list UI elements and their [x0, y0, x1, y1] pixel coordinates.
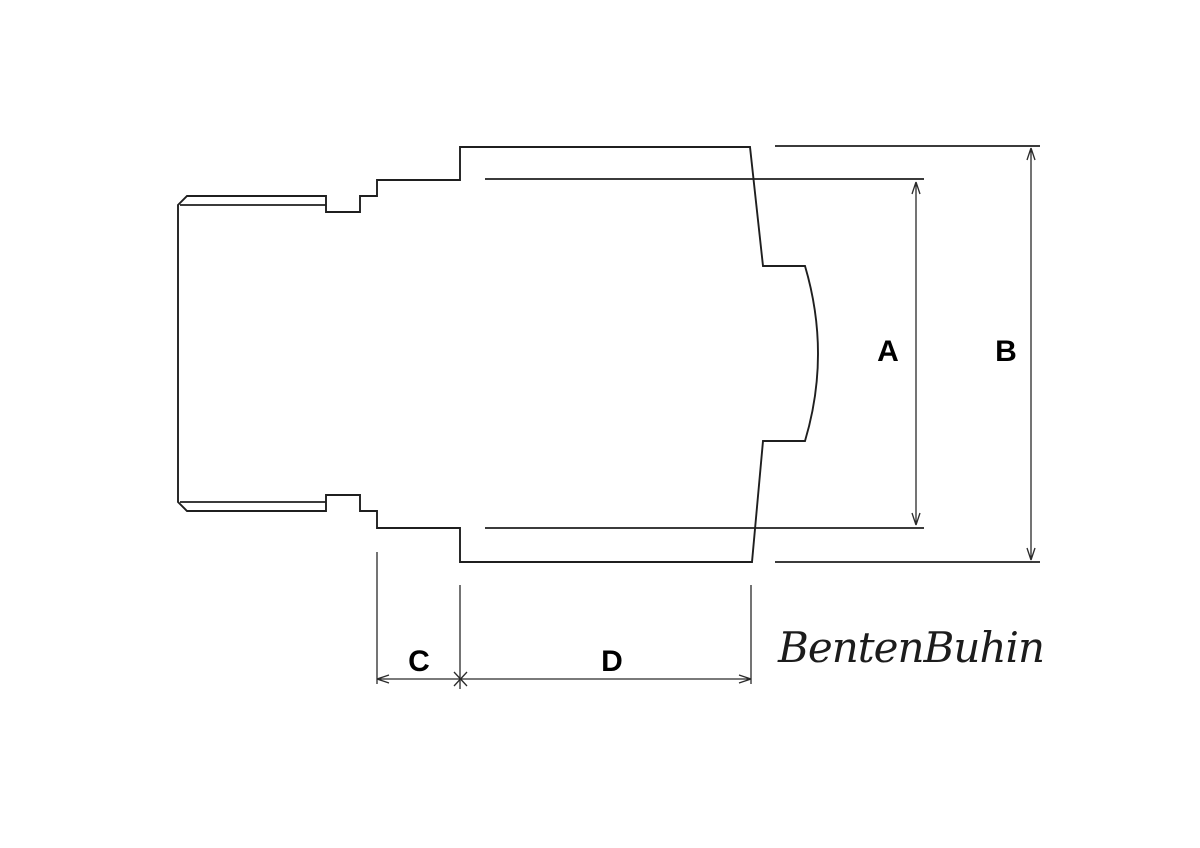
watermark-logo: BentenBuhin: [777, 623, 1044, 672]
dimension-line-cd: [377, 672, 751, 686]
technical-drawing: A B C D BentenBuhin: [0, 0, 1200, 848]
drawing-page: A B C D BentenBuhin: [0, 0, 1200, 848]
dimension-label-d: D: [601, 645, 623, 678]
dimension-label-a: A: [877, 335, 899, 368]
part-outline: [178, 147, 818, 562]
dimension-label-b: B: [995, 335, 1017, 368]
dimension-line-b: [1027, 148, 1035, 560]
dimension-line-a: [912, 182, 920, 525]
dimension-label-c: C: [408, 645, 430, 678]
